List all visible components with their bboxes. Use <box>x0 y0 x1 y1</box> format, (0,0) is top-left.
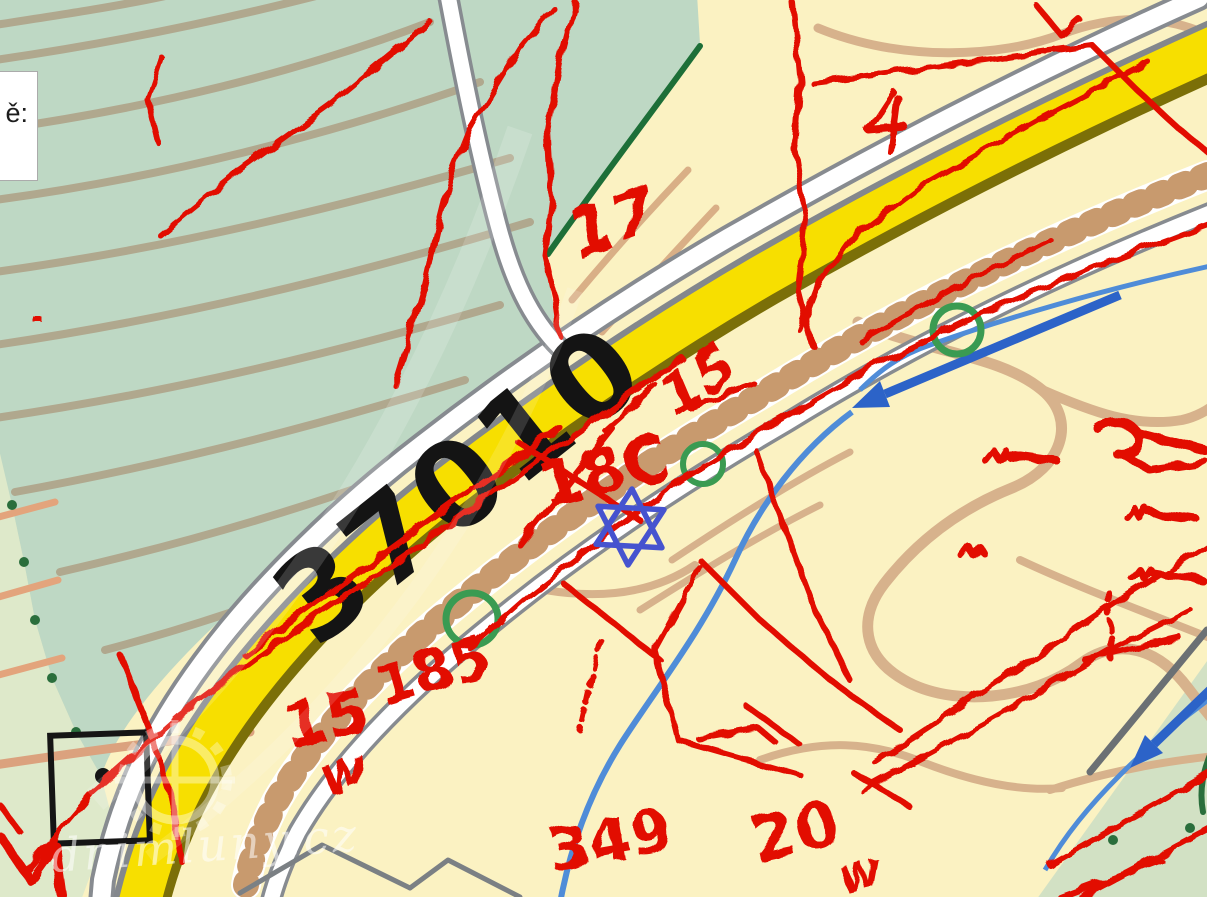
map-image: 37010 <box>0 0 1207 897</box>
info-box-label: ě: <box>5 98 28 129</box>
info-box: ě: <box>0 71 38 181</box>
map-canvas[interactable]: 37010 <box>0 0 1207 897</box>
